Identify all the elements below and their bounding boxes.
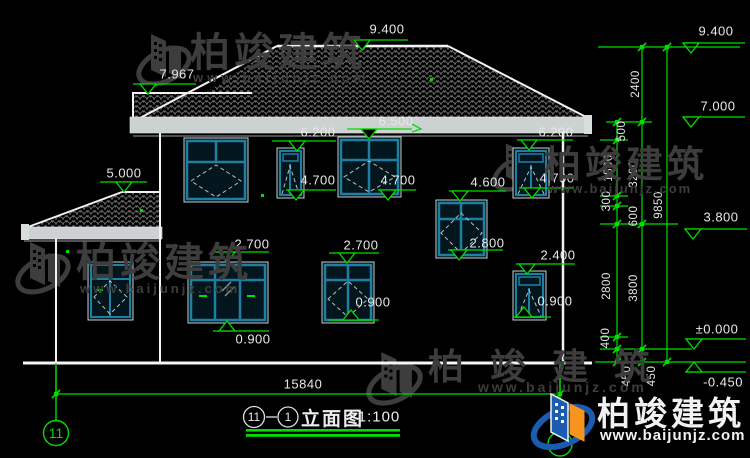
watermark-brand-top: 柏竣建筑 — [190, 33, 366, 73]
drawing-scale: 1:100 — [358, 409, 401, 426]
right-level-3800: 3.800 — [703, 210, 738, 225]
level-label-0900-b: 0.900 — [355, 295, 390, 310]
drawing-title: 立面图 — [301, 404, 364, 431]
level-label-eave-6500: 6.500 — [378, 114, 413, 129]
level-label-ridge: 9.400 — [369, 22, 404, 37]
level-label-0900-c: 0.900 — [537, 294, 572, 309]
level-label-porch: 5.000 — [106, 166, 141, 181]
watermark-url-left: www.baijunjz.com — [80, 282, 240, 295]
chain-dim-600: 600 — [628, 206, 640, 227]
level-label-eave-6200-l: 6.200 — [300, 125, 335, 140]
brand-logo-name: 柏竣建筑 — [597, 397, 745, 430]
level-label-2800: 2.800 — [469, 236, 504, 251]
main-eave-fascia — [130, 115, 592, 136]
right-level-zero: ±0.000 — [696, 322, 739, 337]
level-label-eave-6200-r: 6.200 — [538, 125, 573, 140]
watermark-url-bottom: www.baijunjz.com — [478, 380, 647, 394]
brand-logo-icon — [528, 394, 598, 455]
chain-dim-500: 500 — [616, 121, 628, 142]
chain-dim-3800: 3800 — [628, 274, 640, 302]
window — [184, 138, 248, 202]
right-level-7000: 7.000 — [700, 99, 735, 114]
right-level-9400: 9.400 — [698, 24, 733, 39]
level-label-2400: 2.400 — [540, 248, 575, 263]
level-label-4700-a: 4.700 — [300, 173, 335, 188]
watermark-url-right: www.baijunjz.com — [548, 182, 692, 195]
view-bubble-left-number: 11 — [248, 410, 260, 424]
brand-logo-url: www.baijunjz.com — [600, 428, 745, 443]
watermark-brand-left: 柏竣建筑 — [76, 243, 252, 283]
window — [338, 137, 401, 197]
view-bubble-right-number: 1 — [285, 410, 292, 424]
total-width-dimension: 15840 — [284, 377, 323, 392]
chain-dim-2800: 2800 — [601, 272, 613, 300]
watermark-url-top: www.baijunjz.com — [193, 71, 369, 84]
level-label-2700-b: 2.700 — [343, 238, 378, 253]
elevation-drawing-canvas: 9.400 7.967 5.000 6.500 6.200 6.200 4.70… — [0, 0, 750, 458]
chain-dim-2400: 2400 — [630, 70, 642, 98]
level-label-4600: 4.600 — [470, 175, 505, 190]
axis-bubble-number: 11 — [49, 425, 64, 441]
level-label-0900-a: 0.900 — [235, 332, 270, 347]
level-label-4700-b: 4.700 — [380, 173, 415, 188]
watermark-brand-right: 柏竣建筑 — [544, 146, 708, 183]
dimension-chains — [595, 43, 746, 366]
right-level-minus-0450: -0.450 — [703, 375, 743, 390]
